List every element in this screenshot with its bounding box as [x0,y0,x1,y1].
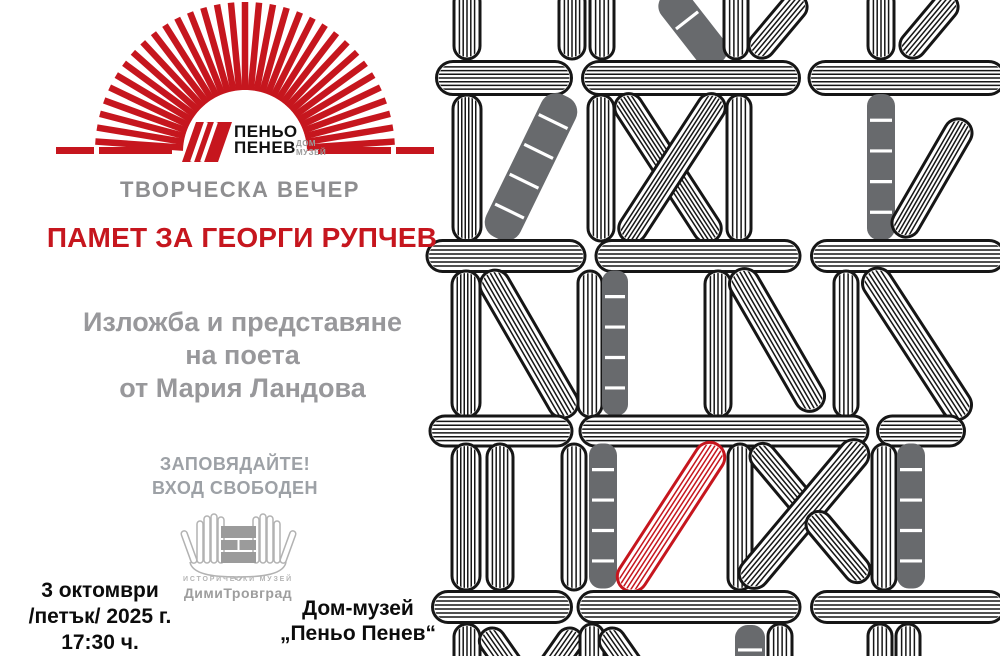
striped-book [812,592,1000,623]
gray-book [735,625,765,656]
striped-book [887,114,977,242]
venue-line: „Пеньо Пенев“ [268,621,448,646]
event-type-heading: ТВОРЧЕСКА ВЕЧЕР [35,177,445,203]
striped-book [724,0,748,59]
date-line: /петък/ 2025 г. [5,604,195,630]
logo-sub-line1: ДОМ [296,139,326,148]
striped-book [809,62,1000,95]
gray-book [897,444,925,589]
description-line: от Мария Ландова [15,372,470,405]
striped-book [578,271,602,417]
logo-sub-line2: МУЗЕЙ [296,148,326,157]
striped-book [612,437,731,598]
description-line: Изложба и представяне [15,306,470,339]
poster-title: ПАМЕТ ЗА ГЕОРГИ РУПЧЕВ [12,222,472,254]
striped-book [834,271,858,417]
description-line: на поета [15,339,470,372]
striped-book [580,416,868,446]
striped-book [812,241,1000,272]
striped-book [437,62,572,95]
logo-subtitle: ДОМ МУЗЕЙ [296,139,326,157]
striped-book [433,592,572,623]
striped-book [487,444,513,590]
striped-book [705,271,731,417]
striped-book [896,624,920,656]
striped-book [868,0,894,59]
event-date-block: 3 октомври /петък/ 2025 г. 17:30 ч. [5,578,195,656]
striped-book [474,623,535,656]
striped-book [878,416,965,446]
date-line: 3 октомври [5,578,195,604]
striped-book [801,506,876,588]
striped-book [872,444,896,590]
striped-book [724,263,830,417]
striped-book [768,624,792,656]
striped-book [578,592,800,623]
striped-book [594,623,655,656]
invite-line: ЗАПОВЯДАЙТЕ! [15,452,455,476]
striped-book [454,0,480,59]
date-line: 17:30 ч. [5,630,195,656]
poster-canvas: ПЕНЬО ПЕНЕВ ДОМ МУЗЕЙ ТВОРЧЕСКА ВЕЧЕР ПА… [0,0,1000,656]
invite-line: ВХОД СВОБОДЕН [15,476,455,500]
history-museum-logo-icon [178,508,298,580]
striped-book [562,444,586,590]
logo-wordmark: ПЕНЬО ПЕНЕВ [234,124,298,156]
striped-book [596,241,800,272]
striped-book [727,95,751,241]
venue-block: Дом-музей „Пеньо Пенев“ [268,596,448,646]
gray-book [602,271,628,416]
venue-line: Дом-музей [268,596,448,621]
striped-book [475,265,584,424]
striped-book [430,416,572,446]
gray-book [589,444,617,589]
striped-book [452,444,480,590]
striped-book [590,0,614,59]
striped-book [588,95,614,241]
description-block: Изложба и представяне на поета от Мария … [15,306,470,405]
striped-book [559,0,585,59]
striped-book [453,95,481,241]
striped-book [857,262,977,425]
gray-book [479,88,582,247]
gray-book [867,94,895,240]
striped-book [583,62,800,95]
striped-book [454,624,480,656]
striped-book [868,624,892,656]
striped-book [895,0,964,63]
logo-name-line2: ПЕНЕВ [234,140,298,156]
invitation-block: ЗАПОВЯДАЙТЕ! ВХОД СВОБОДЕН [15,452,455,500]
striped-book [744,0,813,63]
